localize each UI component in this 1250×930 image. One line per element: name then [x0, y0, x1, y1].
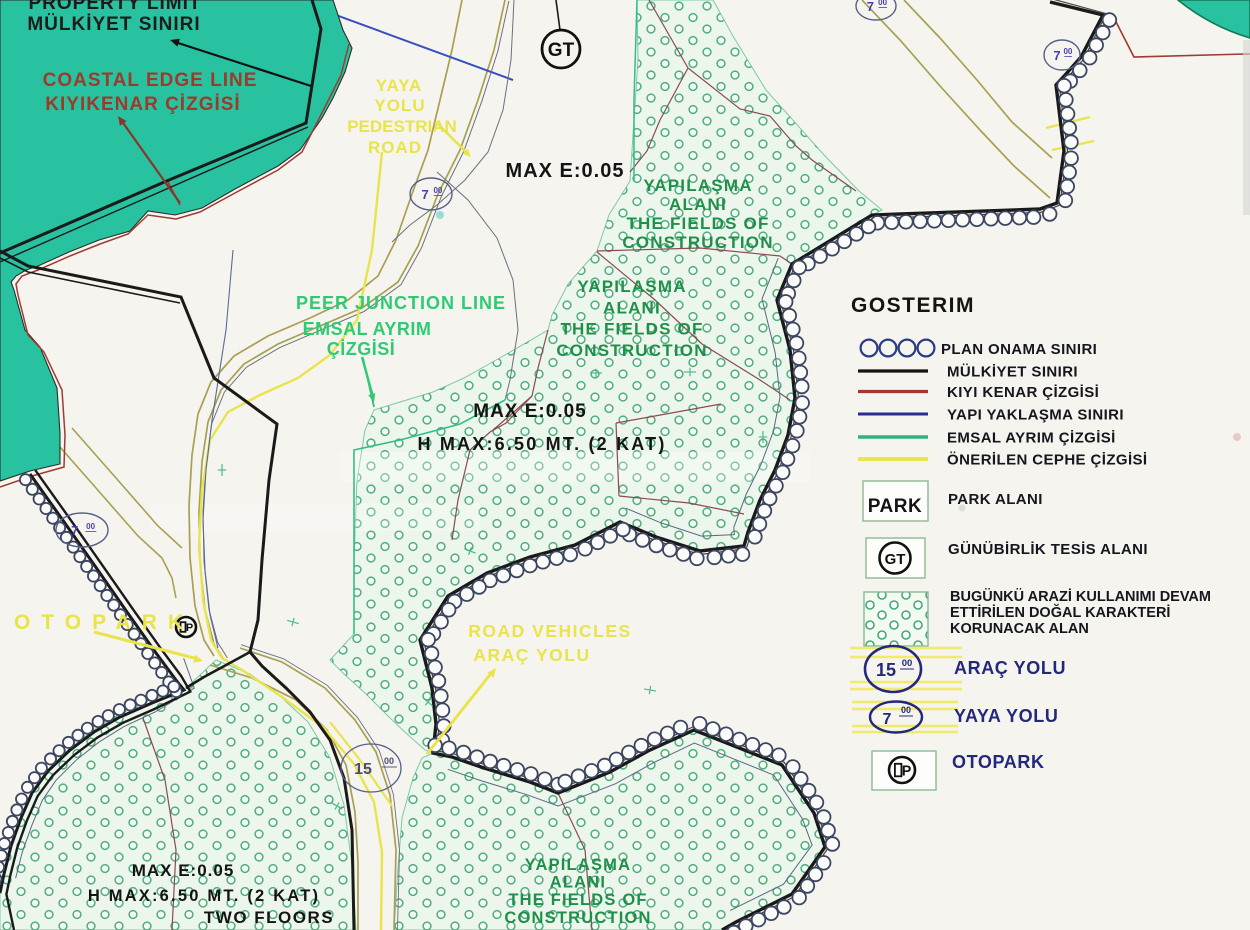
svg-text:00: 00 — [433, 186, 442, 195]
svg-text:7: 7 — [883, 711, 892, 728]
svg-text:15: 15 — [354, 761, 372, 778]
svg-text:THE FIELDS OF: THE FIELDS OF — [508, 891, 647, 909]
svg-text:TWO FLOORS: TWO FLOORS — [204, 908, 334, 927]
svg-text:YAPILAŞMA: YAPILAŞMA — [577, 277, 686, 296]
svg-text:YAPILAŞMA: YAPILAŞMA — [643, 176, 752, 195]
svg-text:YOLU: YOLU — [374, 96, 425, 115]
svg-text:YAPI YAKLAŞMA SINIRI: YAPI YAKLAŞMA SINIRI — [947, 407, 1124, 424]
svg-text:ALANI: ALANI — [669, 195, 727, 214]
svg-text:KORUNACAK ALAN: KORUNACAK ALAN — [950, 621, 1089, 637]
svg-text:ETTİRİLEN DOĞAL KARAKTERİ: ETTİRİLEN DOĞAL KARAKTERİ — [950, 603, 1170, 621]
svg-text:MAX E:0.05: MAX E:0.05 — [473, 401, 586, 422]
svg-text:THE FIELDS OF: THE FIELDS OF — [560, 320, 703, 339]
svg-text:00: 00 — [902, 658, 913, 669]
svg-text:PLAN ONAMA SINIRI: PLAN ONAMA SINIRI — [941, 341, 1097, 358]
svg-text:ÇİZGİSİ: ÇİZGİSİ — [327, 339, 396, 359]
svg-text:GOSTERIM: GOSTERIM — [851, 294, 975, 317]
svg-text:7: 7 — [1053, 48, 1060, 63]
svg-text:00: 00 — [901, 705, 911, 715]
svg-text:MAX E:0.05: MAX E:0.05 — [132, 861, 235, 880]
svg-text:P: P — [902, 763, 912, 779]
svg-text:15: 15 — [876, 660, 896, 680]
svg-text:EMSAL AYRIM ÇİZGİSİ: EMSAL AYRIM ÇİZGİSİ — [947, 430, 1116, 447]
svg-text:ARAÇ YOLU: ARAÇ YOLU — [473, 645, 590, 665]
svg-text:00: 00 — [86, 522, 95, 531]
svg-text:YAYA: YAYA — [376, 76, 423, 95]
svg-text:7: 7 — [422, 187, 429, 202]
svg-text:H MAX:6.50 MT. (2 KAT): H MAX:6.50 MT. (2 KAT) — [88, 887, 320, 905]
svg-text:GT: GT — [885, 551, 906, 568]
svg-text:YAYA YOLU: YAYA YOLU — [954, 706, 1058, 726]
svg-text:OTOPARK: OTOPARK — [14, 611, 194, 634]
svg-text:PEER JUNCTION LINE: PEER JUNCTION LINE — [296, 293, 506, 313]
svg-text:BUGÜNKÜ ARAZİ KULLANIMI DEVAM: BUGÜNKÜ ARAZİ KULLANIMI DEVAM — [950, 588, 1211, 605]
svg-text:CONSTRUCTION: CONSTRUCTION — [622, 233, 773, 252]
svg-text:GT: GT — [548, 40, 575, 61]
svg-text:COASTAL EDGE LINE: COASTAL EDGE LINE — [43, 70, 258, 91]
svg-text:PEDESTRIAN: PEDESTRIAN — [347, 117, 457, 136]
svg-text:EMSAL AYRIM: EMSAL AYRIM — [303, 319, 432, 339]
svg-text:PARK: PARK — [868, 496, 922, 517]
svg-text:7: 7 — [71, 523, 78, 538]
svg-text:ROAD: ROAD — [368, 138, 422, 157]
svg-text:7: 7 — [867, 0, 874, 14]
svg-text:CONSTRUCTION: CONSTRUCTION — [556, 341, 707, 360]
svg-text:MAX E:0.05: MAX E:0.05 — [506, 160, 625, 182]
svg-text:00: 00 — [384, 756, 394, 766]
svg-text:GÜNÜBİRLİK TESİS ALANI: GÜNÜBİRLİK TESİS ALANI — [948, 541, 1148, 558]
svg-text:ROAD VEHICLES: ROAD VEHICLES — [468, 621, 631, 641]
svg-text:ALANI: ALANI — [550, 874, 606, 892]
svg-text:ALANI: ALANI — [603, 298, 661, 317]
svg-text:PROPERTY LIMIT: PROPERTY LIMIT — [28, 0, 201, 14]
svg-text:YAPILAŞMA: YAPILAŞMA — [525, 856, 631, 874]
svg-text:CONSTRUCTION: CONSTRUCTION — [504, 909, 651, 927]
svg-text:00: 00 — [1063, 47, 1072, 56]
svg-text:H MAX:6.50 MT. (2 KAT): H MAX:6.50 MT. (2 KAT) — [417, 434, 666, 454]
svg-text:MÜLKİYET SINIRI: MÜLKİYET SINIRI — [947, 364, 1078, 381]
svg-text:KIYIKENAR ÇİZGİSİ: KIYIKENAR ÇİZGİSİ — [45, 94, 240, 115]
svg-text:KIYI KENAR ÇİZGİSİ: KIYI KENAR ÇİZGİSİ — [947, 384, 1099, 401]
svg-text:ARAÇ YOLU: ARAÇ YOLU — [954, 658, 1066, 678]
svg-text:THE FIELDS OF: THE FIELDS OF — [626, 214, 769, 233]
svg-text:00: 00 — [878, 0, 887, 7]
svg-text:ÖNERİLEN CEPHE ÇİZGİSİ: ÖNERİLEN CEPHE ÇİZGİSİ — [947, 452, 1148, 469]
svg-text:MÜLKİYET SINIRI: MÜLKİYET SINIRI — [27, 14, 200, 35]
svg-text:OTOPARK: OTOPARK — [952, 752, 1045, 772]
